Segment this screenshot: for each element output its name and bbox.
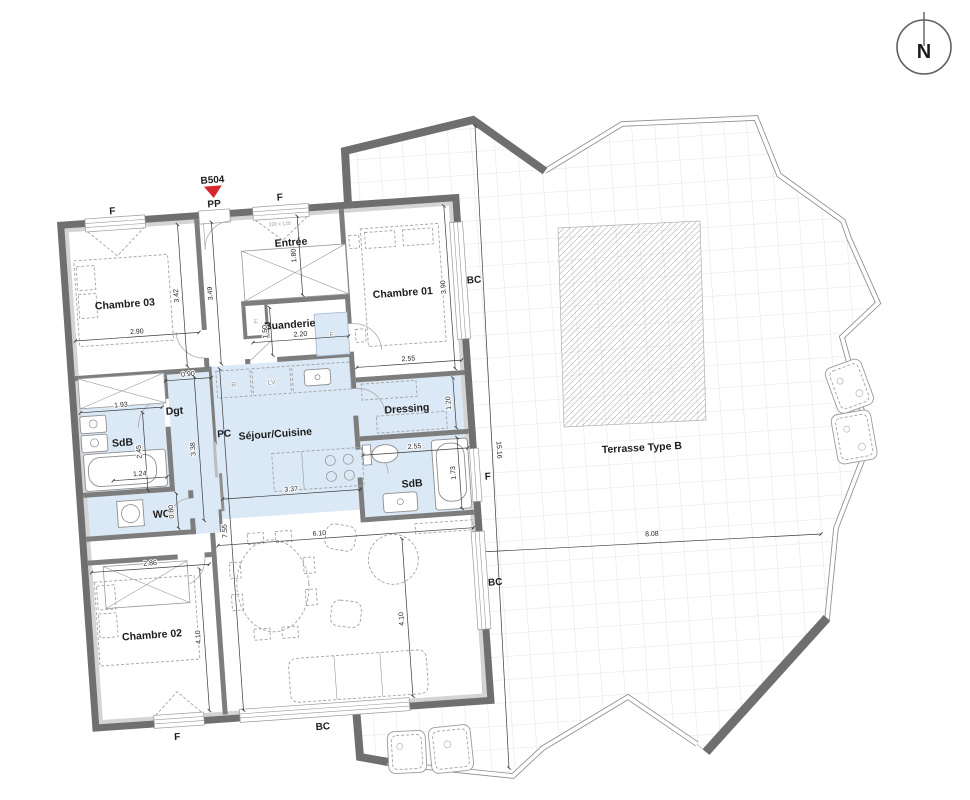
dim-410-sejour: 4.10: [398, 612, 406, 626]
washer-box: F: [314, 312, 350, 356]
dim-755: 7.55: [221, 524, 229, 538]
dim-124: 1.24: [133, 470, 147, 478]
north-label: N: [917, 41, 931, 63]
dim-410-ch02: 4.10: [195, 630, 203, 644]
terrace-overhang-hatch: [558, 221, 706, 427]
dim-390: 3.90: [440, 280, 448, 294]
appliance-label-fridge: R: [231, 382, 237, 389]
dim-173: 1.73: [450, 466, 458, 480]
dining-set: [227, 529, 319, 642]
dim-337: 3.37: [284, 486, 298, 494]
window-f-chambre03: [85, 215, 148, 258]
floor-plan-page: Terrasse Type B 15.16 8.08: [0, 0, 970, 800]
window-f-chambre02: [152, 690, 204, 728]
dim-090: 0.90: [181, 371, 195, 379]
dim-8-08: 8.08: [645, 531, 659, 539]
apartment: F: [58, 157, 512, 749]
side-table: [367, 533, 420, 586]
unit-flag-triangle: [204, 185, 223, 198]
dim-255-sdb: 2.55: [408, 443, 422, 451]
opening-label-f-ch02: F: [174, 732, 181, 743]
room-label-chambre02: Chambre 02: [122, 627, 183, 643]
wc-fixtures: [117, 500, 145, 528]
dim-150: 1.50: [262, 325, 270, 339]
room-label-sdb1: SdB: [112, 436, 134, 449]
room-label-dgt: Dgt: [165, 405, 184, 418]
floor-plan: Terrasse Type B 15.16 8.08: [0, 0, 970, 800]
room-label-chambre01: Chambre 01: [372, 285, 433, 301]
room-label-entree: Entrée: [274, 236, 308, 250]
sofa: [288, 649, 429, 703]
planter: [428, 724, 475, 774]
dim-080: 0.80: [168, 505, 176, 519]
closet-chambre02: [103, 561, 190, 609]
dim-286: 2.86: [143, 560, 157, 568]
dim-290: 2.90: [130, 328, 144, 336]
appliance-label-dishwasher: LV: [267, 379, 276, 387]
opening-label-f-top1: F: [109, 206, 116, 217]
planter: [830, 409, 878, 465]
planter: [387, 730, 427, 774]
dim-180: 1.80: [290, 248, 298, 262]
dim-245: 2.45: [136, 445, 144, 459]
north-compass: N: [897, 12, 951, 74]
opening-label-bc-sejour: BC: [488, 577, 503, 589]
dim-349: 3.49: [207, 286, 215, 300]
closet-label-pl: Pl: [253, 319, 259, 324]
room-label-chambre03: Chambre 03: [95, 296, 156, 312]
tv-sideboard: [415, 520, 474, 534]
room-label-buanderie: Buanderie: [264, 317, 316, 333]
unit-code: B504: [200, 174, 225, 187]
opening-label-bc-sud: BC: [315, 721, 330, 733]
opening-label-f-top2: F: [276, 192, 283, 203]
opening-label-bc-ch01: BC: [467, 275, 482, 287]
dim-338: 3.38: [190, 442, 198, 456]
dim-610: 6.10: [312, 530, 326, 538]
appliance-label-washer: F: [329, 332, 334, 339]
room-label-sdb2: SdB: [401, 477, 423, 490]
window-size-note: 220 x 120: [269, 221, 292, 229]
door-pp: [199, 209, 233, 250]
dim-255-ch01: 2.55: [401, 355, 415, 363]
opening-label-pp: PP: [207, 199, 221, 211]
dim-193: 1.93: [114, 402, 128, 410]
unit-flag: B504: [200, 174, 226, 199]
dim-120: 1.20: [445, 396, 453, 410]
dim-342: 3.42: [173, 289, 181, 303]
dim-220: 2.20: [293, 331, 307, 339]
armchair: [330, 599, 363, 628]
dim-15-16: 15.16: [495, 441, 503, 459]
opening-label-f-sdb: F: [484, 471, 491, 482]
